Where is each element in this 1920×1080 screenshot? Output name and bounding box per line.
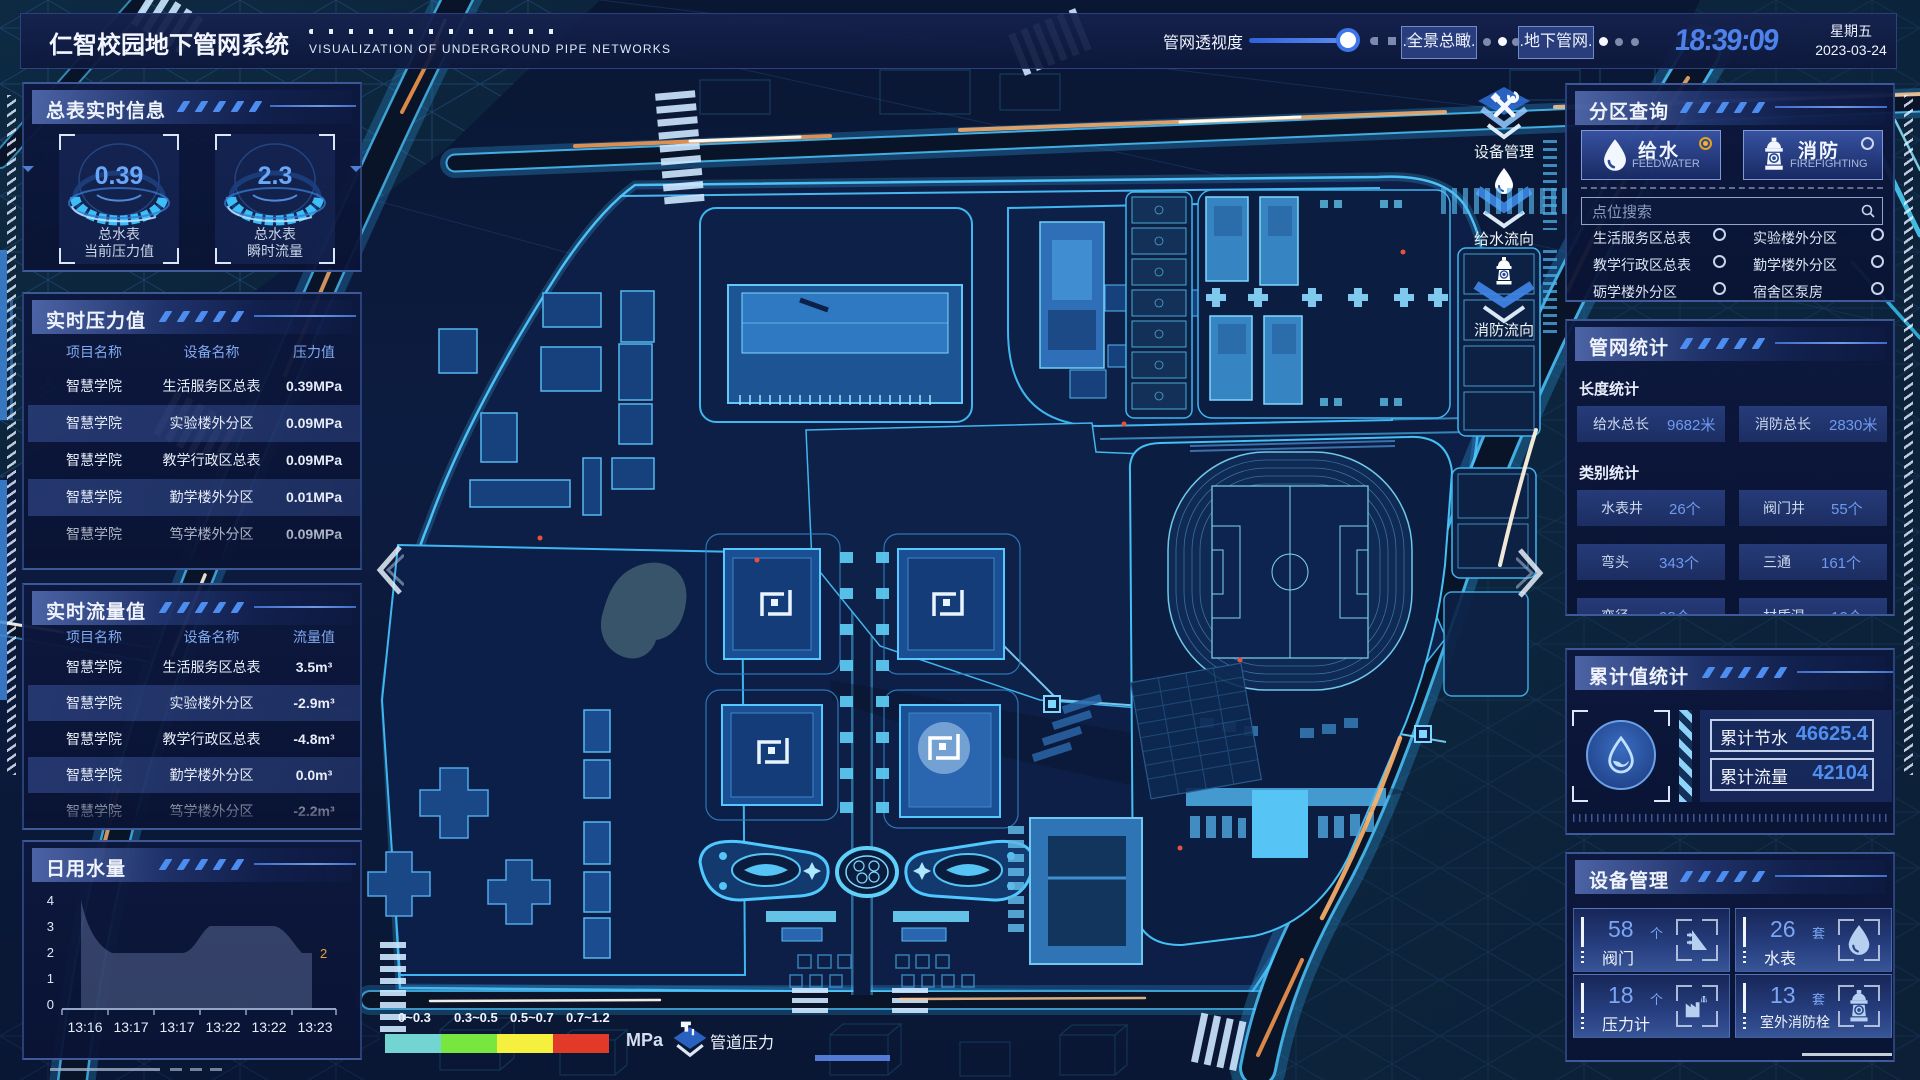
svg-text:4: 4: [47, 893, 54, 908]
svg-text:13:17: 13:17: [159, 1019, 194, 1035]
svg-text:2: 2: [47, 945, 54, 960]
svg-text:13:22: 13:22: [251, 1019, 286, 1035]
svg-text:13:22: 13:22: [205, 1019, 240, 1035]
svg-text:13:16: 13:16: [67, 1019, 102, 1035]
svg-text:13:17: 13:17: [113, 1019, 148, 1035]
svg-text:2: 2: [320, 946, 327, 961]
svg-text:3: 3: [47, 919, 54, 934]
svg-text:0: 0: [47, 997, 54, 1012]
svg-text:1: 1: [47, 971, 54, 986]
svg-text:13:23: 13:23: [297, 1019, 332, 1035]
